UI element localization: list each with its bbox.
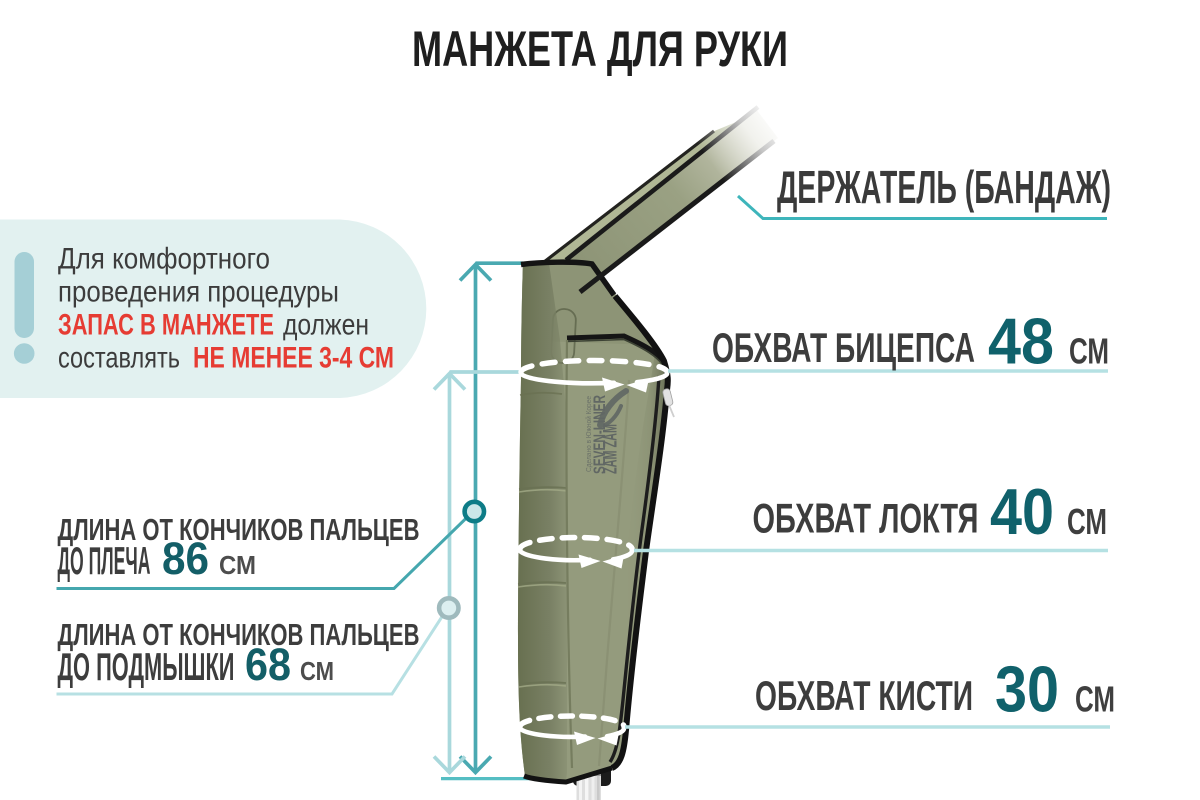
svg-text:68: 68 xyxy=(245,639,291,690)
svg-text:ДО ПЛЕЧА: ДО ПЛЕЧА xyxy=(58,540,151,583)
svg-text:должен: должен xyxy=(283,309,369,342)
svg-text:СМ: СМ xyxy=(300,656,334,686)
svg-text:ОБХВАТ БИЦЕПСА: ОБХВАТ БИЦЕПСА xyxy=(712,324,975,371)
svg-text:СМ: СМ xyxy=(219,550,256,580)
svg-text:МАНЖЕТА ДЛЯ РУКИ: МАНЖЕТА ДЛЯ РУКИ xyxy=(412,21,788,77)
svg-text:составлять: составлять xyxy=(58,342,180,375)
svg-text:86: 86 xyxy=(162,533,209,584)
svg-text:СМ: СМ xyxy=(1067,501,1107,542)
svg-text:40: 40 xyxy=(990,475,1054,548)
svg-text:НЕ МЕНЕЕ 3-4 СМ: НЕ МЕНЕЕ 3-4 СМ xyxy=(193,342,394,375)
svg-text:ЗАПАС В МАНЖЕТЕ: ЗАПАС В МАНЖЕТЕ xyxy=(58,309,274,342)
svg-text:30: 30 xyxy=(995,652,1059,725)
svg-text:СМ: СМ xyxy=(1069,330,1109,371)
svg-text:48: 48 xyxy=(988,304,1054,377)
svg-text:ОБХВАТ ЛОКТЯ: ОБХВАТ ЛОКТЯ xyxy=(753,495,979,542)
svg-text:ДЕРЖАТЕЛЬ (БАНДАЖ): ДЕРЖАТЕЛЬ (БАНДАЖ) xyxy=(777,161,1111,213)
svg-text:ZAM ZAM: ZAM ZAM xyxy=(601,424,622,474)
svg-text:ОБХВАТ КИСТИ: ОБХВАТ КИСТИ xyxy=(755,672,973,719)
svg-text:проведения процедуры: проведения процедуры xyxy=(58,276,339,309)
svg-text:ДО ПОДМЫШКИ: ДО ПОДМЫШКИ xyxy=(58,646,235,689)
svg-text:СМ: СМ xyxy=(1075,678,1115,719)
svg-text:Для комфортного: Для комфортного xyxy=(58,243,270,276)
